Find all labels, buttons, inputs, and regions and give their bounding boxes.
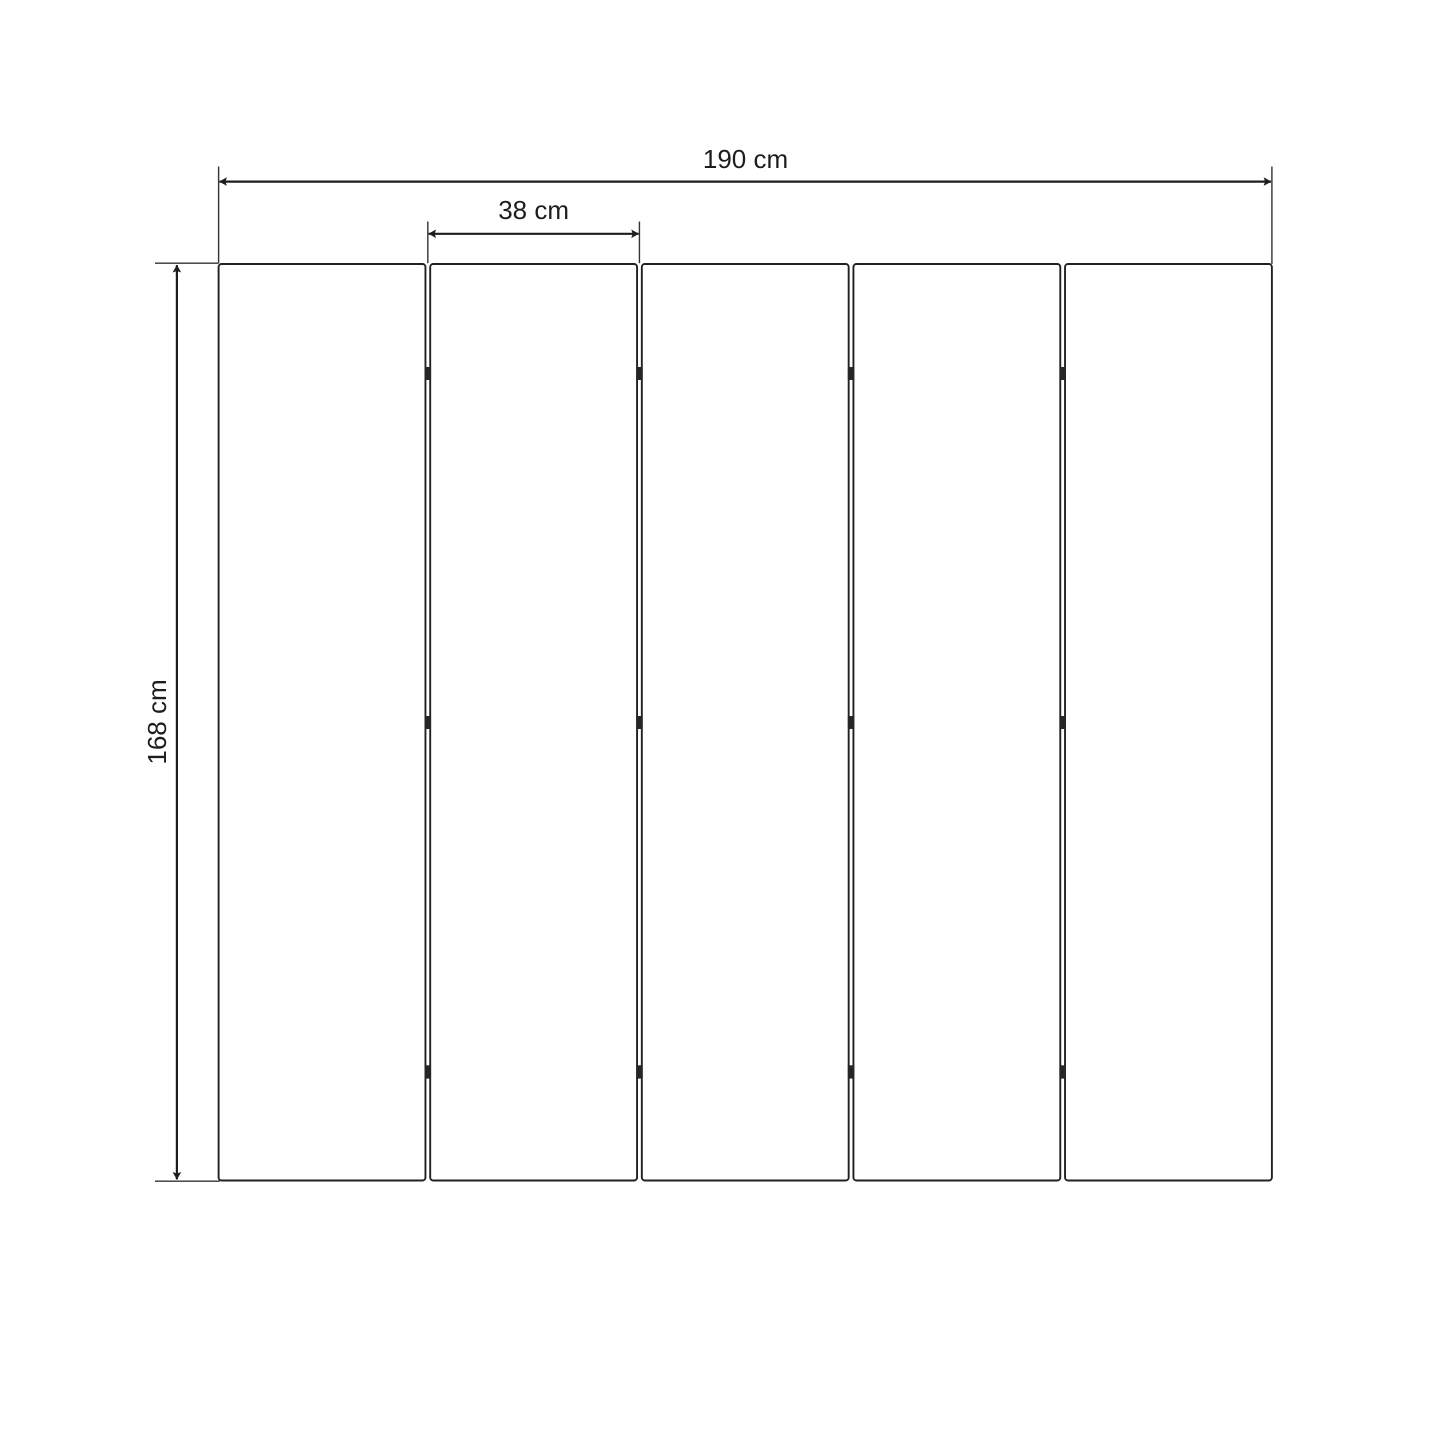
svg-text:168 cm: 168 cm [142, 679, 172, 764]
svg-text:38 cm: 38 cm [498, 195, 569, 225]
svg-text:190 cm: 190 cm [703, 144, 788, 174]
